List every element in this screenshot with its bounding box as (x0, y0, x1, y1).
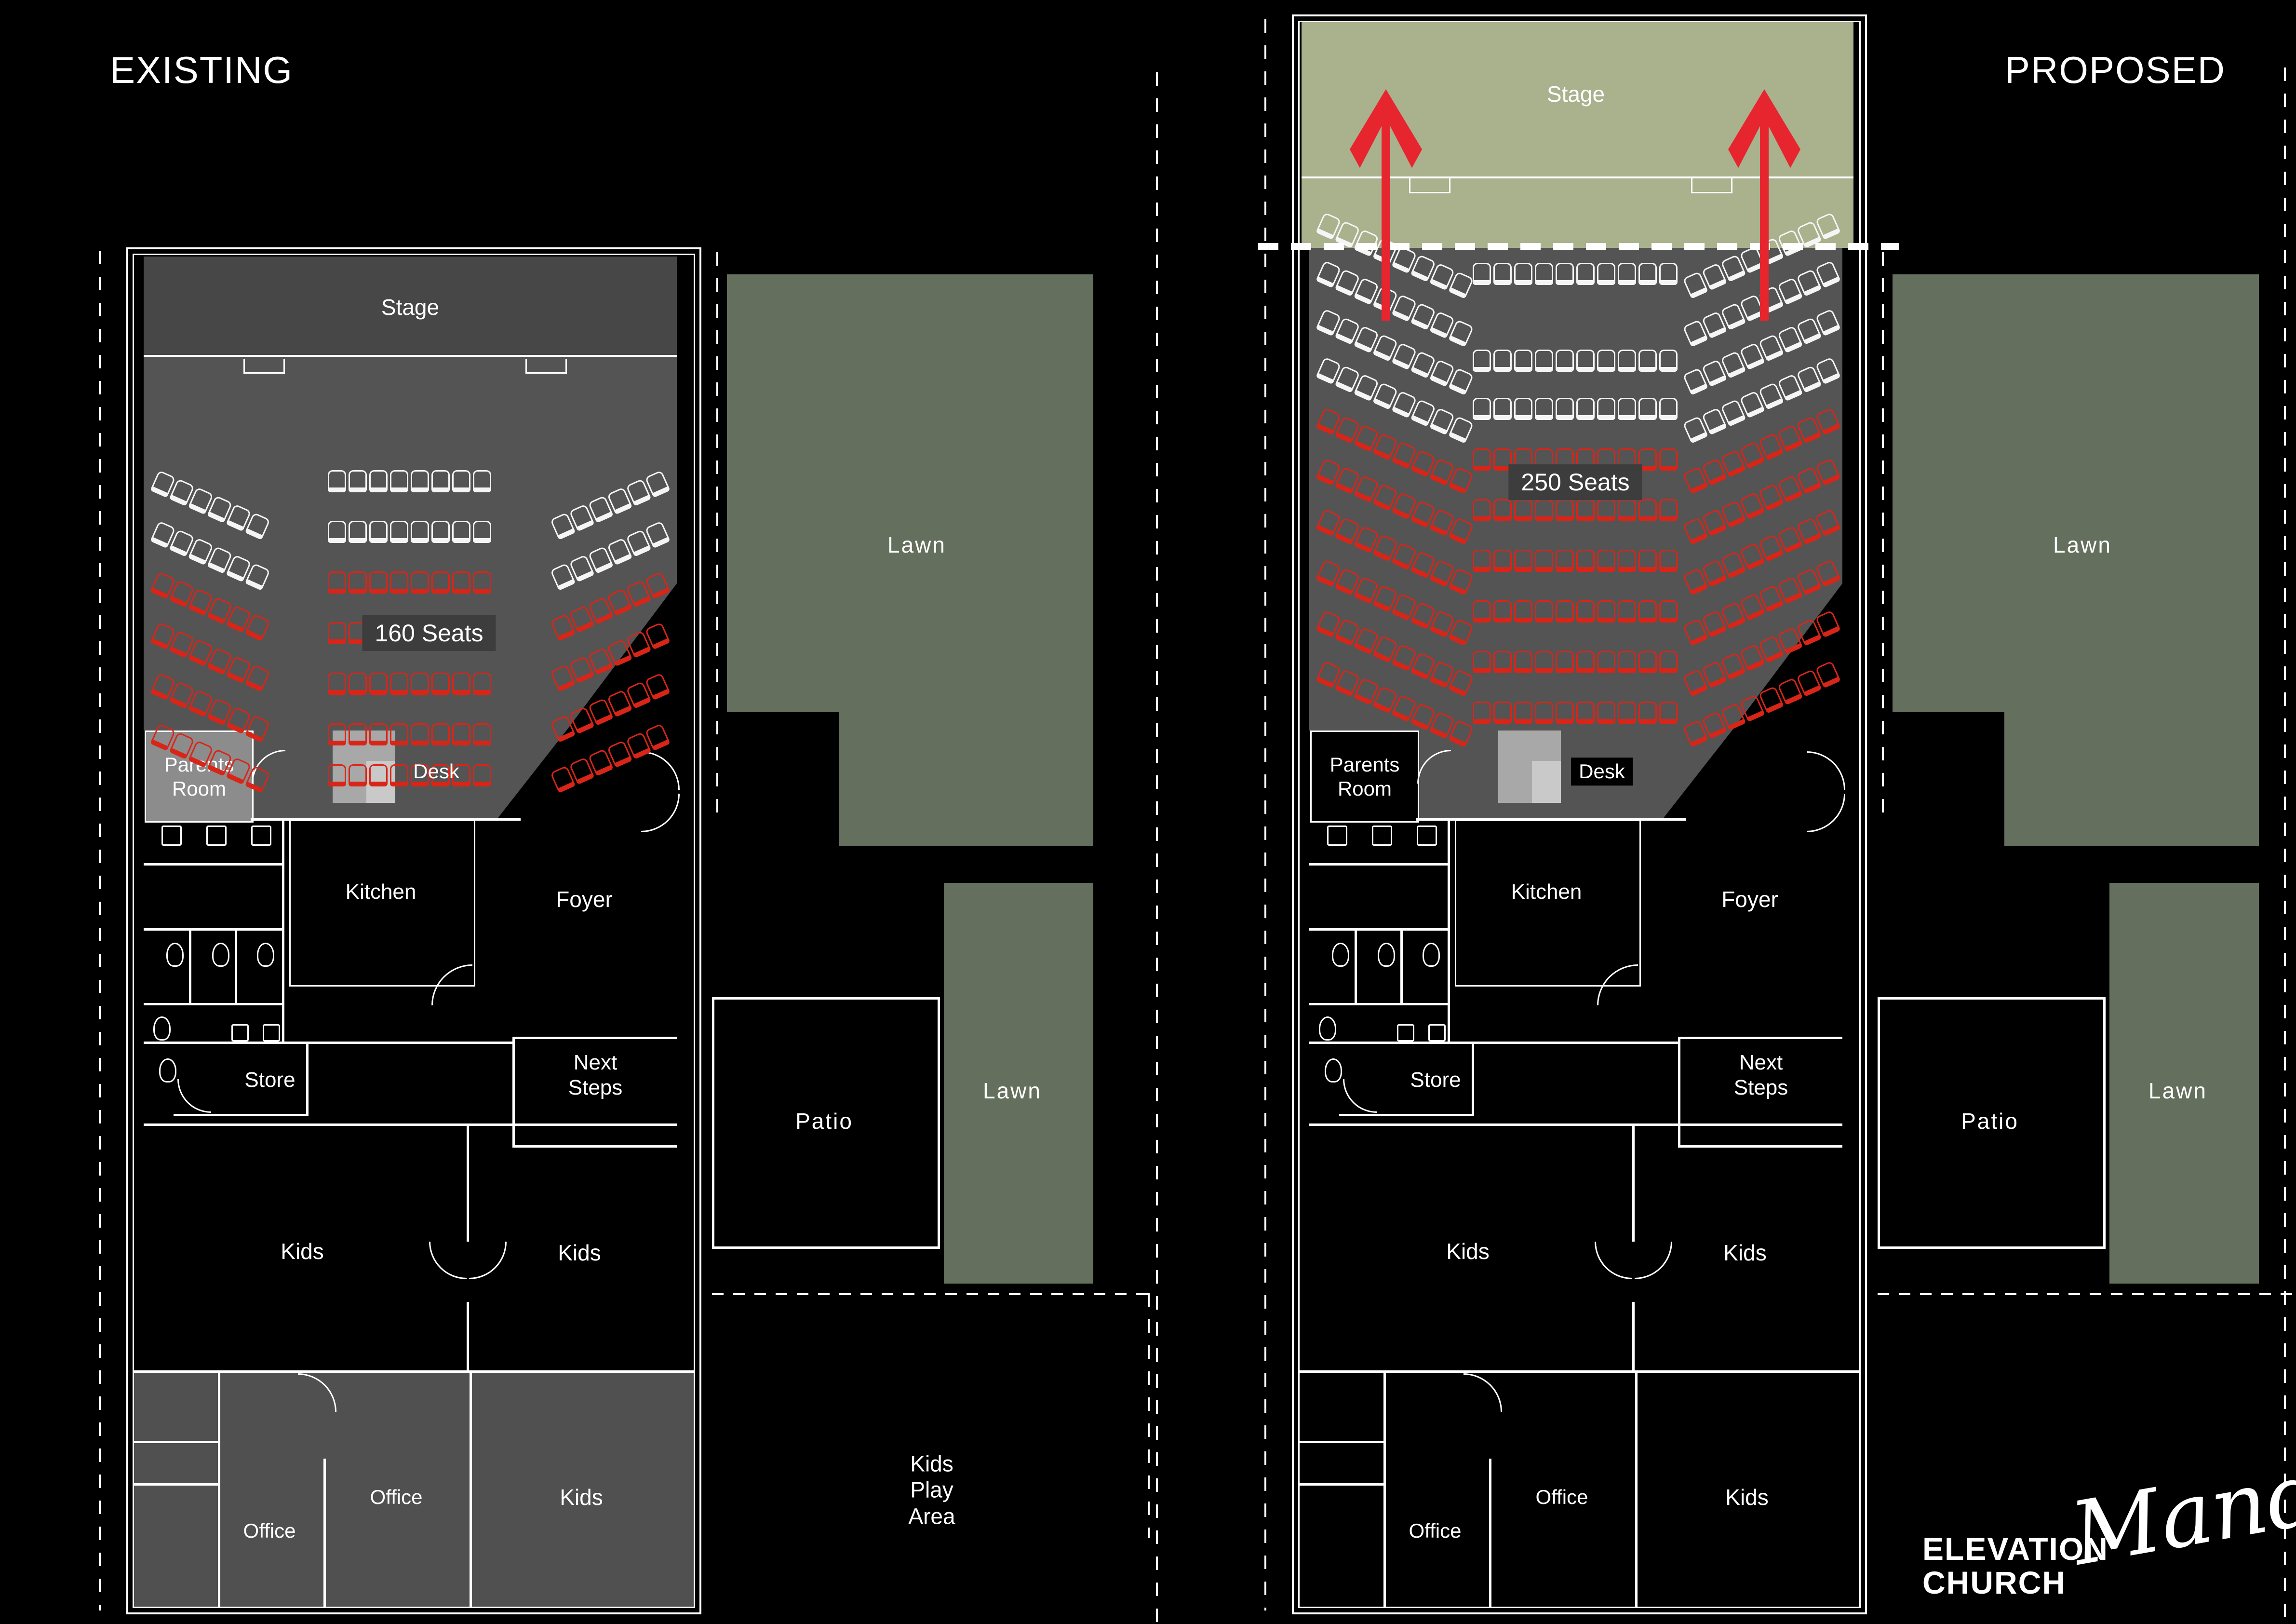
seat-icon (328, 723, 346, 745)
seat-icon (1556, 600, 1574, 623)
seat-icon (328, 470, 346, 492)
door-swing-icon (429, 1242, 467, 1279)
seat-count-label: 250 Seats (1508, 464, 1642, 500)
seat-icon (1473, 651, 1491, 673)
seat-row (1473, 651, 1678, 673)
door-swing-icon (641, 794, 680, 832)
wall (1355, 931, 1357, 1003)
toilet-fixture-icon (159, 1058, 176, 1083)
seat-icon (1597, 600, 1615, 623)
seat-icon (452, 521, 470, 543)
seat-icon (1618, 550, 1636, 572)
seat-icon (1618, 350, 1636, 372)
seat-icon (431, 571, 450, 594)
lawn-area (839, 712, 1093, 846)
seat-icon (1535, 263, 1553, 285)
wall (218, 1373, 220, 1610)
lawn-area (1893, 274, 2259, 712)
foyer-label: Foyer (556, 886, 613, 912)
next-steps-label: Next Steps (1734, 1050, 1788, 1100)
seat-icon (1535, 550, 1553, 572)
door-swing-icon (1807, 751, 1845, 790)
wall (1400, 931, 1403, 1003)
play-area-dashed-line (1148, 1293, 1150, 1538)
seat-icon (452, 470, 470, 492)
seat-icon (1638, 350, 1657, 372)
seat-row (1473, 550, 1678, 572)
door-swing-icon (641, 751, 680, 790)
seat-icon (349, 673, 367, 695)
wall (1309, 928, 1449, 931)
seat-icon (1618, 398, 1636, 420)
site-plan-canvas: EXISTING PROPOSED Stage 160 Seats Parent… (0, 0, 2296, 1624)
seat-icon (369, 470, 388, 492)
door-swing-icon (1807, 794, 1845, 832)
seat-icon (452, 571, 470, 594)
seat-icon (473, 673, 491, 695)
lawn-label: Lawn (887, 532, 946, 558)
seat-icon (369, 723, 388, 745)
seat-icon (1556, 398, 1574, 420)
seat-icon (1618, 702, 1636, 724)
seat-icon (1597, 499, 1615, 521)
wall (144, 1003, 283, 1005)
seat-icon (473, 521, 491, 543)
seat-icon (390, 571, 408, 594)
seat-icon (473, 571, 491, 594)
wall (1309, 1123, 1842, 1126)
toilet-fixture-icon (1378, 943, 1395, 967)
seat-icon (473, 470, 491, 492)
wall (1678, 1037, 1680, 1148)
toilet-fixture-icon (1423, 943, 1440, 967)
seat-icon (349, 521, 367, 543)
center-divider-dashed-line (1156, 72, 1158, 1624)
seat-icon (473, 723, 491, 745)
stage-label: Stage (381, 294, 439, 320)
wall (1635, 1373, 1638, 1610)
seat-icon (1493, 702, 1512, 724)
seat-icon (1514, 499, 1532, 521)
store-label: Store (1410, 1068, 1461, 1093)
seat-icon (1493, 550, 1512, 572)
next-steps-label: Next Steps (568, 1050, 623, 1100)
seat-icon (1535, 600, 1553, 623)
basin-fixture-icon (251, 826, 271, 846)
stage-step (525, 359, 567, 374)
desk-shape-accent (1532, 761, 1561, 803)
basin-fixture-icon (161, 826, 182, 846)
seat-icon (1659, 263, 1678, 285)
seat-icon (1638, 550, 1657, 572)
wall (1489, 1459, 1491, 1610)
seat-icon (1659, 651, 1678, 673)
basin-fixture-icon (1417, 826, 1437, 846)
parents-room: Parents Room (1310, 731, 1419, 823)
seat-icon (411, 521, 429, 543)
stage-step (1691, 178, 1732, 193)
door-swing-icon (1464, 1373, 1502, 1412)
basin-fixture-icon (1327, 826, 1347, 846)
seat-icon (1576, 702, 1595, 724)
site-boundary-dashed-line (99, 251, 101, 1610)
seat-row (328, 571, 491, 594)
seat-icon (1638, 651, 1657, 673)
office-label: Office (243, 1519, 296, 1543)
seat-icon (431, 673, 450, 695)
seat-icon (1473, 499, 1491, 521)
seat-row (1473, 350, 1678, 372)
toilet-fixture-icon (1319, 1016, 1336, 1041)
wall (1309, 863, 1449, 866)
seat-icon (328, 673, 346, 695)
basin-fixture-icon (206, 826, 227, 846)
seat-icon (411, 723, 429, 745)
wall (144, 1123, 677, 1126)
wall (512, 1145, 677, 1148)
kids-room-label: Kids (560, 1484, 603, 1510)
seat-icon (349, 764, 367, 786)
wall (1383, 1373, 1386, 1610)
seat-icon (1576, 398, 1595, 420)
wall (1298, 1370, 1863, 1373)
desk-label: Desk (1571, 758, 1633, 785)
seat-icon (349, 470, 367, 492)
seat-row (1473, 499, 1678, 521)
seat-icon (1576, 550, 1595, 572)
seat-icon (1514, 600, 1532, 623)
seat-icon (328, 571, 346, 594)
wall (1298, 1483, 1385, 1486)
seat-icon (390, 723, 408, 745)
wall (1339, 1114, 1474, 1116)
seat-icon (1514, 702, 1532, 724)
kids-room-label: Kids (281, 1238, 323, 1264)
foyer-label: Foyer (1721, 886, 1778, 912)
kitchen-label: Kitchen (346, 880, 416, 905)
seat-icon (1514, 550, 1532, 572)
wall (133, 1483, 219, 1486)
seat-icon (1514, 651, 1532, 673)
seat-icon (1659, 398, 1678, 420)
seat-icon (328, 622, 346, 644)
existing-plan: Stage 160 Seats Parents Room Desk Kitche… (0, 0, 1155, 1624)
seat-icon (1514, 350, 1532, 372)
parents-room-label: Parents Room (1330, 753, 1400, 800)
seat-icon (1659, 702, 1678, 724)
toilet-fixture-icon (212, 943, 229, 967)
wall (512, 1037, 677, 1039)
seat-row (328, 470, 491, 492)
lawn-label: Lawn (983, 1078, 1042, 1104)
seat-icon (1556, 263, 1574, 285)
seat-icon (1473, 702, 1491, 724)
seat-icon (1618, 499, 1636, 521)
wall (144, 928, 283, 931)
wall (467, 1126, 469, 1242)
seat-icon (390, 764, 408, 786)
seat-row (1473, 398, 1678, 420)
seat-icon (1556, 499, 1574, 521)
seat-icon (1659, 350, 1678, 372)
patio-label: Patio (1961, 1108, 2019, 1134)
store-label: Store (244, 1068, 295, 1093)
wall (467, 1302, 469, 1372)
basin-fixture-icon (1372, 826, 1392, 846)
seat-icon (390, 470, 408, 492)
existing-title: EXISTING (110, 48, 293, 92)
wall (1632, 1302, 1635, 1372)
seat-icon (1473, 350, 1491, 372)
seat-icon (1493, 398, 1512, 420)
seat-icon (1473, 263, 1491, 285)
seat-count-label: 160 Seats (362, 615, 496, 651)
seat-row (1473, 600, 1678, 623)
seat-icon (1535, 702, 1553, 724)
toilet-fixture-icon (257, 943, 274, 967)
patio-label: Patio (795, 1108, 853, 1134)
seat-icon (1618, 600, 1636, 623)
wall (323, 1459, 326, 1610)
seat-icon (1556, 550, 1574, 572)
office-label: Office (1536, 1485, 1588, 1509)
wall (144, 1042, 515, 1044)
wall (133, 1441, 219, 1443)
seat-icon (1535, 499, 1553, 521)
seat-icon (1473, 448, 1491, 471)
seat-row (328, 521, 491, 543)
seat-icon (1473, 600, 1491, 623)
seat-icon (1638, 499, 1657, 521)
seat-icon (369, 673, 388, 695)
door-swing-icon (1635, 1242, 1672, 1279)
lawn-area (727, 274, 1093, 712)
seat-icon (369, 571, 388, 594)
wall (282, 820, 284, 1044)
seat-icon (431, 723, 450, 745)
kids-room-label: Kids (1723, 1240, 1766, 1266)
seat-icon (1473, 398, 1491, 420)
seat-icon (349, 571, 367, 594)
wall (144, 863, 283, 866)
kids-room-label: Kids (558, 1240, 601, 1266)
seat-icon (328, 764, 346, 786)
seat-icon (1535, 398, 1553, 420)
seat-icon (1659, 499, 1678, 521)
seat-icon (452, 673, 470, 695)
seat-icon (349, 723, 367, 745)
seat-icon (1659, 550, 1678, 572)
seat-icon (328, 521, 346, 543)
seat-icon (411, 470, 429, 492)
site-boundary-dashed-line (1882, 252, 1884, 821)
seat-icon (1597, 398, 1615, 420)
wall (1472, 1042, 1474, 1116)
lawn-label: Lawn (2053, 532, 2112, 558)
seat-icon (1576, 651, 1595, 673)
seat-icon (431, 470, 450, 492)
seat-icon (1493, 499, 1512, 521)
seat-icon (1659, 600, 1678, 623)
wall (1416, 818, 1686, 821)
right-boundary-dashed-line (2284, 68, 2286, 1624)
seat-row (328, 723, 491, 745)
seat-icon (1597, 263, 1615, 285)
seat-icon (1618, 263, 1636, 285)
wall (1309, 1042, 1680, 1044)
office-label: Office (1409, 1519, 1462, 1543)
seat-icon (1618, 651, 1636, 673)
seat-icon (1493, 350, 1512, 372)
basin-fixture-icon (263, 1024, 280, 1042)
play-area-dashed-line (1878, 1293, 2296, 1295)
seat-icon (1597, 550, 1615, 572)
proposed-plan: Stage 250 Seats Parents Room Desk Kitche… (1166, 0, 2296, 1624)
basin-fixture-icon (1397, 1024, 1414, 1042)
kids-play-area-label: Kids Play Area (908, 1451, 955, 1529)
seat-icon (1638, 600, 1657, 623)
seat-icon (431, 521, 450, 543)
wall (235, 931, 237, 1003)
seat-icon (452, 723, 470, 745)
toilet-fixture-icon (1325, 1058, 1342, 1083)
seat-icon (1556, 350, 1574, 372)
kids-room-label: Kids (1446, 1238, 1489, 1264)
seat-icon (1514, 263, 1532, 285)
wall (306, 1042, 309, 1116)
door-swing-icon (469, 1242, 507, 1279)
seat-row (328, 764, 491, 786)
seat-icon (1597, 702, 1615, 724)
seat-icon (369, 521, 388, 543)
toilet-fixture-icon (153, 1016, 171, 1041)
wall (189, 931, 191, 1003)
seat-icon (1638, 263, 1657, 285)
seat-icon (1514, 398, 1532, 420)
seat-icon (390, 521, 408, 543)
seat-row (1473, 702, 1678, 724)
door-swing-icon (177, 1079, 211, 1113)
lawn-area (2004, 712, 2259, 846)
seat-icon (473, 764, 491, 786)
seat-icon (1576, 600, 1595, 623)
desk-label: Desk (413, 759, 459, 784)
door-swing-icon (1595, 1242, 1632, 1279)
seat-icon (1576, 350, 1595, 372)
seat-icon (369, 764, 388, 786)
seat-icon (1493, 600, 1512, 623)
play-area-dashed-line (712, 1293, 1150, 1295)
stage-step (1409, 178, 1450, 193)
seat-icon (1659, 448, 1678, 471)
seat-row (328, 673, 491, 695)
wall (174, 1114, 309, 1116)
wall (133, 1370, 698, 1373)
seat-icon (1597, 651, 1615, 673)
wall (1309, 1003, 1449, 1005)
door-swing-icon (1343, 1079, 1377, 1113)
wall (251, 818, 521, 821)
seat-icon (1597, 350, 1615, 372)
wall (1678, 1037, 1842, 1039)
kitchen-label: Kitchen (1511, 880, 1582, 905)
wall (1678, 1145, 1842, 1148)
seat-icon (411, 673, 429, 695)
seat-icon (1493, 651, 1512, 673)
seat-icon (1576, 499, 1595, 521)
wall (512, 1037, 515, 1148)
seat-icon (411, 571, 429, 594)
office-label: Office (370, 1485, 423, 1509)
site-boundary-dashed-line (716, 252, 718, 821)
seat-icon (1638, 398, 1657, 420)
seat-icon (1535, 651, 1553, 673)
stage-step (243, 359, 285, 374)
seat-icon (1535, 350, 1553, 372)
stage-label: Stage (1547, 81, 1605, 107)
wall (1632, 1126, 1635, 1242)
seat-icon (1556, 651, 1574, 673)
seat-icon (1576, 263, 1595, 285)
toilet-fixture-icon (1332, 943, 1349, 967)
seat-icon (1638, 702, 1657, 724)
basin-fixture-icon (1428, 1024, 1446, 1042)
seat-icon (1556, 702, 1574, 724)
seat-icon (390, 673, 408, 695)
basin-fixture-icon (231, 1024, 249, 1042)
kids-room-label: Kids (1725, 1484, 1768, 1510)
seat-row (1473, 263, 1678, 285)
toilet-fixture-icon (166, 943, 184, 967)
stage-extension-dashed-line (1258, 243, 1899, 250)
wall (1448, 820, 1450, 1044)
seat-icon (1473, 550, 1491, 572)
wall (470, 1373, 472, 1610)
lawn-label: Lawn (2148, 1078, 2207, 1104)
seat-icon (1493, 263, 1512, 285)
site-boundary-dashed-line (1264, 19, 1266, 1610)
wall (1298, 1441, 1385, 1443)
proposed-title: PROPOSED (2005, 48, 2226, 92)
